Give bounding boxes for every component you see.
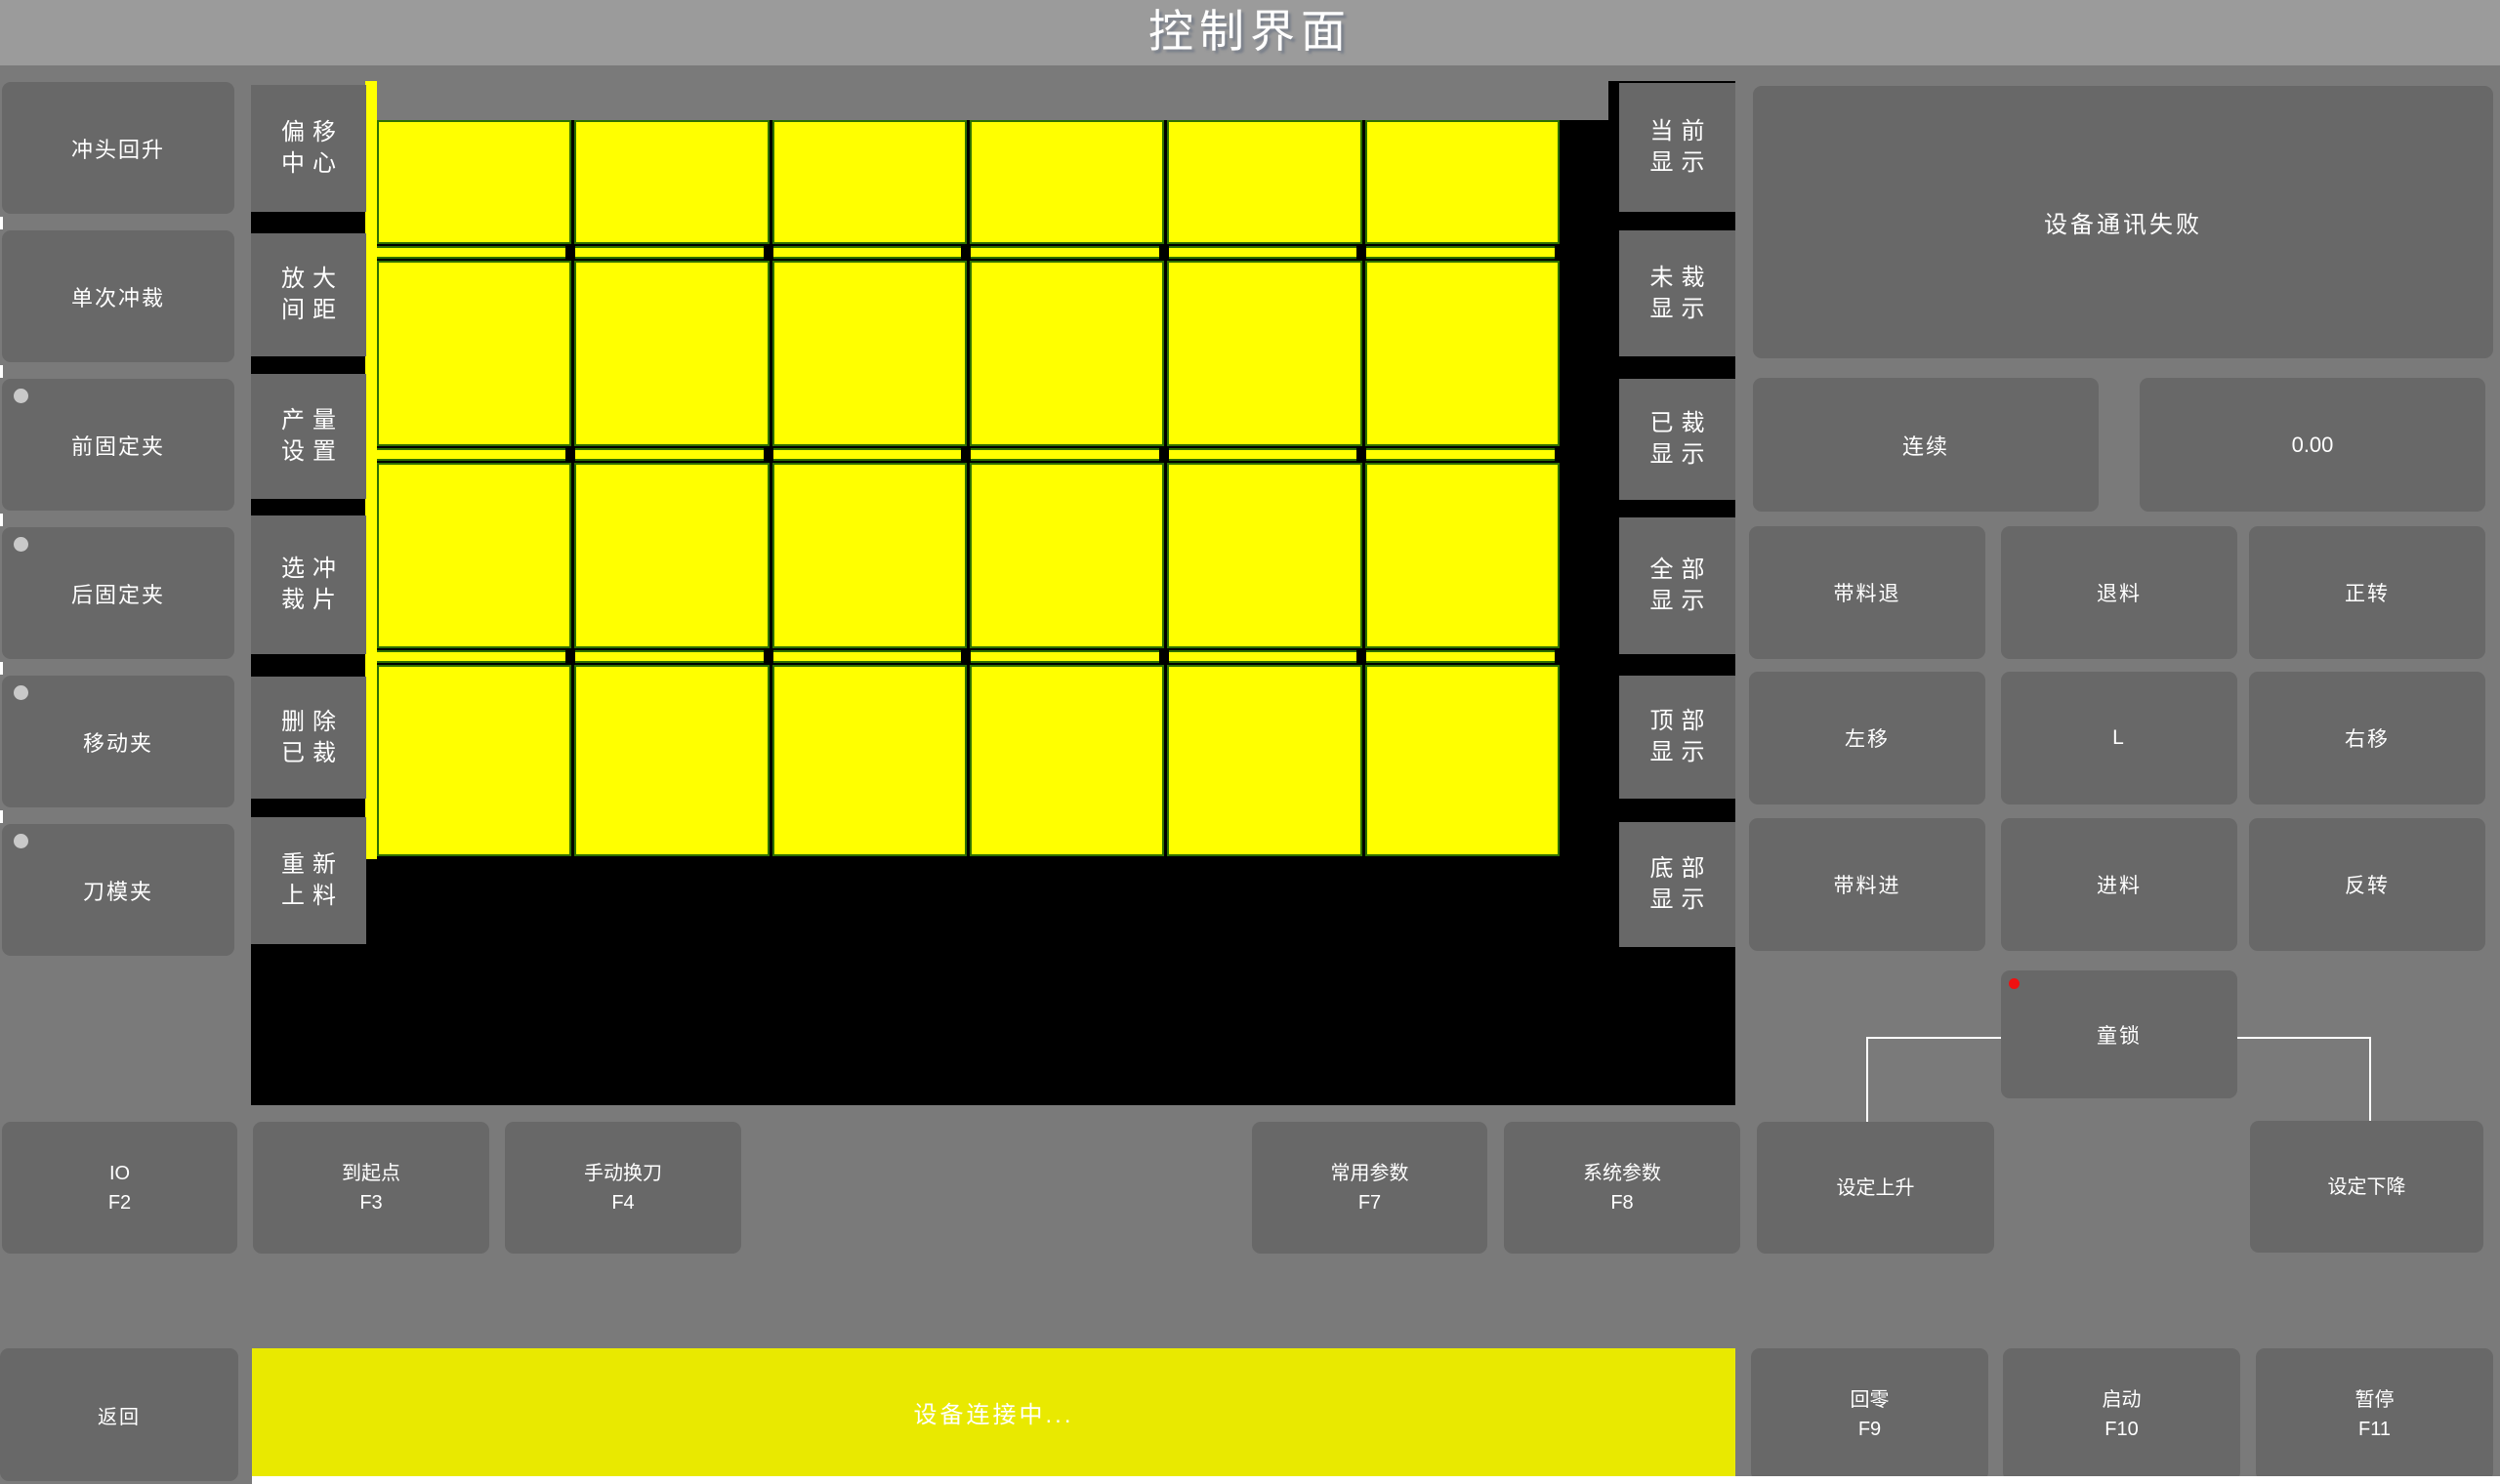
tool-button-delete-cut[interactable]: 删除 已裁 bbox=[251, 677, 366, 799]
mode-continuous-button[interactable]: 连续 bbox=[1753, 378, 2099, 512]
jog-move-left-button[interactable]: 左移 bbox=[1749, 672, 1985, 804]
canvas-top-margin bbox=[377, 81, 1608, 120]
button-label: 中心 bbox=[273, 148, 344, 180]
grid-notch bbox=[1555, 650, 1564, 665]
button-label: 显示 bbox=[1643, 147, 1713, 179]
grid-notch bbox=[764, 246, 773, 261]
display-button-show-all[interactable]: 全部 显示 bbox=[1619, 517, 1735, 654]
button-label: 进料 bbox=[2097, 870, 2142, 899]
grid-notch bbox=[1356, 650, 1366, 665]
button-label: 常用参数 bbox=[1331, 1159, 1409, 1188]
child-lock-button[interactable]: 童锁 bbox=[2001, 970, 2237, 1098]
grid-notch bbox=[961, 650, 971, 665]
edge-mark bbox=[0, 662, 3, 675]
display-button-show-bottom[interactable]: 底部 显示 bbox=[1619, 822, 1735, 947]
edge-mark bbox=[0, 365, 3, 378]
button-label: 手动换刀 bbox=[584, 1159, 662, 1188]
piece-grid[interactable] bbox=[375, 118, 1562, 860]
fkey-label: F8 bbox=[1610, 1188, 1633, 1217]
button-label: 显示 bbox=[1643, 294, 1713, 325]
value-display: 0.00 bbox=[2140, 378, 2485, 512]
button-label: L bbox=[2112, 726, 2126, 750]
edge-mark bbox=[0, 810, 3, 823]
grid-notch bbox=[1356, 246, 1366, 261]
button-label: 到起点 bbox=[342, 1159, 400, 1188]
button-label: 返回 bbox=[98, 1401, 141, 1429]
button-label: 顶部 bbox=[1643, 706, 1713, 737]
connection-status-text: 设备连接中... bbox=[913, 1395, 1073, 1429]
button-label: 系统参数 bbox=[1583, 1159, 1661, 1188]
button-label: 启动 bbox=[2103, 1385, 2142, 1415]
display-button-show-uncut[interactable]: 未裁 显示 bbox=[1619, 230, 1735, 356]
left-button-punch-up[interactable]: 冲头回升 bbox=[2, 82, 234, 214]
fkey-label: F10 bbox=[2104, 1415, 2138, 1444]
left-button-single-punch[interactable]: 单次冲裁 bbox=[2, 230, 234, 362]
fkey-label: F7 bbox=[1358, 1188, 1381, 1217]
cut-piece[interactable] bbox=[574, 665, 769, 856]
grid-notch bbox=[961, 448, 971, 463]
cut-piece[interactable] bbox=[1365, 463, 1560, 648]
button-label: 暂停 bbox=[2355, 1385, 2395, 1415]
page-title: 控制界面 bbox=[1148, 7, 1352, 57]
scrap-strip bbox=[377, 650, 1560, 663]
cut-piece[interactable] bbox=[970, 665, 1164, 856]
button-label: 后固定夹 bbox=[71, 578, 165, 609]
status-message-box: 设备通讯失败 bbox=[1753, 86, 2493, 358]
button-label: 放大 bbox=[273, 264, 344, 295]
action-button-pause-f11[interactable]: 暂停 F11 bbox=[2256, 1348, 2493, 1481]
edge-mark bbox=[0, 514, 3, 526]
cut-piece[interactable] bbox=[1167, 120, 1361, 244]
grid-notch bbox=[1159, 246, 1169, 261]
grid-notch bbox=[1555, 448, 1564, 463]
button-label: 正转 bbox=[2345, 578, 2390, 607]
connector-line bbox=[2237, 1037, 2371, 1039]
button-label: 移动夹 bbox=[83, 726, 153, 758]
button-label: 反转 bbox=[2345, 870, 2390, 899]
button-label: 裁片 bbox=[273, 585, 344, 616]
jog-unload-button[interactable]: 退料 bbox=[2001, 526, 2237, 659]
button-label: 上料 bbox=[273, 881, 344, 912]
fkey-label: F4 bbox=[611, 1188, 634, 1217]
grid-notch bbox=[764, 650, 773, 665]
cut-piece[interactable] bbox=[377, 463, 571, 648]
button-label: 冲头回升 bbox=[71, 133, 165, 164]
cut-piece[interactable] bbox=[772, 463, 967, 648]
action-button-start-f10[interactable]: 启动 F10 bbox=[2003, 1348, 2240, 1481]
function-button-system-params-f8[interactable]: 系统参数 F8 bbox=[1504, 1122, 1740, 1254]
cut-piece[interactable] bbox=[1365, 665, 1560, 856]
cut-piece[interactable] bbox=[574, 261, 769, 446]
display-button-show-top[interactable]: 顶部 显示 bbox=[1619, 676, 1735, 799]
indicator-dot bbox=[14, 685, 28, 700]
button-label: 当前 bbox=[1643, 116, 1713, 147]
indicator-dot bbox=[14, 389, 28, 403]
left-button-front-clamp[interactable]: 前固定夹 bbox=[2, 379, 234, 511]
button-label: 回零 bbox=[1851, 1385, 1890, 1415]
red-indicator-dot bbox=[2009, 978, 2020, 989]
left-button-rear-clamp[interactable]: 后固定夹 bbox=[2, 527, 234, 659]
button-label: 产量 bbox=[273, 405, 344, 436]
cut-piece[interactable] bbox=[574, 120, 769, 244]
grid-notch bbox=[1159, 650, 1169, 665]
fkey-label: F11 bbox=[2358, 1415, 2391, 1444]
action-button-zero-f9[interactable]: 回零 F9 bbox=[1751, 1348, 1988, 1481]
button-label: 带料退 bbox=[1834, 578, 1901, 607]
button-label: 设定上升 bbox=[1837, 1174, 1915, 1203]
function-button-set-rise[interactable]: 设定上升 bbox=[1757, 1122, 1994, 1254]
fkey-label: F9 bbox=[1858, 1415, 1881, 1444]
cut-piece[interactable] bbox=[1167, 463, 1361, 648]
cut-piece[interactable] bbox=[1167, 261, 1361, 446]
indicator-dot bbox=[14, 834, 28, 848]
function-button-set-fall[interactable]: 设定下降 bbox=[2250, 1121, 2483, 1253]
button-label: 全部 bbox=[1643, 555, 1713, 586]
jog-move-right-button[interactable]: 右移 bbox=[2249, 672, 2485, 804]
display-button-show-cut[interactable]: 已裁 显示 bbox=[1619, 379, 1735, 500]
button-label: 带料进 bbox=[1834, 870, 1901, 899]
grid-notch bbox=[961, 246, 971, 261]
jog-reverse-rotate-button[interactable]: 反转 bbox=[2249, 818, 2485, 951]
button-label: 设置 bbox=[273, 436, 344, 468]
button-label: 偏移 bbox=[273, 117, 344, 148]
left-button-moving-clamp[interactable]: 移动夹 bbox=[2, 676, 234, 807]
scrap-strip bbox=[377, 246, 1560, 259]
edge-mark bbox=[0, 217, 3, 229]
function-button-origin-f3[interactable]: 到起点 F3 bbox=[253, 1122, 489, 1254]
fkey-label: F3 bbox=[359, 1188, 382, 1217]
jog-forward-rotate-button[interactable]: 正转 bbox=[2249, 526, 2485, 659]
tool-button-select-piece[interactable]: 选冲 裁片 bbox=[251, 515, 366, 654]
button-label: 重新 bbox=[273, 849, 344, 881]
button-label: 童锁 bbox=[2097, 1020, 2142, 1050]
button-label: 显示 bbox=[1643, 737, 1713, 768]
jog-feed-in-button[interactable]: 进料 bbox=[2001, 818, 2237, 951]
button-label: 连续 bbox=[1902, 430, 1949, 461]
button-label: 退料 bbox=[2097, 578, 2142, 607]
button-label: 设定下降 bbox=[2328, 1173, 2406, 1202]
button-label: IO bbox=[109, 1159, 130, 1188]
grid-notch bbox=[565, 448, 575, 463]
cut-piece[interactable] bbox=[1365, 120, 1560, 244]
jog-feed-in-material-button[interactable]: 带料进 bbox=[1749, 818, 1985, 951]
button-label: 显示 bbox=[1643, 439, 1713, 471]
cut-piece[interactable] bbox=[970, 120, 1164, 244]
cut-piece[interactable] bbox=[377, 665, 571, 856]
title-bar: 控制界面 bbox=[0, 0, 2500, 65]
back-button[interactable]: 返回 bbox=[0, 1348, 238, 1481]
tool-button-output-settings[interactable]: 产量 设置 bbox=[251, 374, 366, 499]
fkey-label: F2 bbox=[108, 1188, 131, 1217]
tool-button-enlarge-spacing[interactable]: 放大 间距 bbox=[251, 233, 366, 356]
function-button-common-params-f7[interactable]: 常用参数 F7 bbox=[1252, 1122, 1487, 1254]
cut-piece[interactable] bbox=[772, 665, 967, 856]
canvas-left-band bbox=[251, 85, 366, 944]
function-button-manual-tool-change-f4[interactable]: 手动换刀 F4 bbox=[505, 1122, 741, 1254]
left-button-die-clamp[interactable]: 刀模夹 bbox=[2, 824, 234, 956]
grid-notch bbox=[565, 246, 575, 261]
button-label: 底部 bbox=[1643, 853, 1713, 885]
cut-piece[interactable] bbox=[772, 120, 967, 244]
grid-notch bbox=[764, 448, 773, 463]
button-label: 删除 bbox=[273, 707, 344, 738]
canvas-bottom-band bbox=[251, 854, 1735, 1105]
button-label: 已裁 bbox=[1643, 408, 1713, 439]
tool-button-reload-material[interactable]: 重新 上料 bbox=[251, 817, 366, 944]
cut-piece[interactable] bbox=[377, 120, 571, 244]
button-label: 刀模夹 bbox=[83, 875, 153, 906]
button-label: 已裁 bbox=[273, 738, 344, 769]
button-label: 显示 bbox=[1643, 586, 1713, 617]
bottom-edge-strip bbox=[252, 1476, 2500, 1484]
value-text: 0.00 bbox=[2292, 433, 2334, 458]
cut-piece[interactable] bbox=[970, 261, 1164, 446]
jog-l-button[interactable]: L bbox=[2001, 672, 2237, 804]
cut-piece[interactable] bbox=[574, 463, 769, 648]
button-label: 未裁 bbox=[1643, 263, 1713, 294]
cut-piece[interactable] bbox=[970, 463, 1164, 648]
connector-line bbox=[2369, 1037, 2371, 1123]
connector-line bbox=[1866, 1037, 2001, 1039]
button-label: 单次冲裁 bbox=[71, 281, 165, 312]
grid-notch bbox=[1159, 448, 1169, 463]
jog-feed-back-material-button[interactable]: 带料退 bbox=[1749, 526, 1985, 659]
tool-button-offset-center[interactable]: 偏移 中心 bbox=[251, 85, 366, 212]
grid-notch bbox=[565, 650, 575, 665]
status-message: 设备通讯失败 bbox=[2044, 205, 2202, 239]
button-label: 右移 bbox=[2345, 723, 2390, 753]
button-label: 前固定夹 bbox=[71, 430, 165, 461]
grid-notch bbox=[1356, 448, 1366, 463]
cut-piece[interactable] bbox=[1167, 665, 1361, 856]
button-label: 显示 bbox=[1643, 885, 1713, 916]
button-label: 选冲 bbox=[273, 554, 344, 585]
cut-piece[interactable] bbox=[377, 261, 571, 446]
function-button-io-f2[interactable]: IO F2 bbox=[2, 1122, 237, 1254]
display-button-show-current[interactable]: 当前 显示 bbox=[1619, 83, 1735, 212]
scrap-strip bbox=[377, 448, 1560, 461]
button-label: 左移 bbox=[1845, 723, 1890, 753]
grid-notch bbox=[1555, 246, 1564, 261]
button-label: 间距 bbox=[273, 295, 344, 326]
indicator-dot bbox=[14, 537, 28, 552]
cut-piece[interactable] bbox=[772, 261, 967, 446]
cut-piece[interactable] bbox=[1365, 261, 1560, 446]
connection-status-bar: 设备连接中... bbox=[252, 1348, 1735, 1476]
